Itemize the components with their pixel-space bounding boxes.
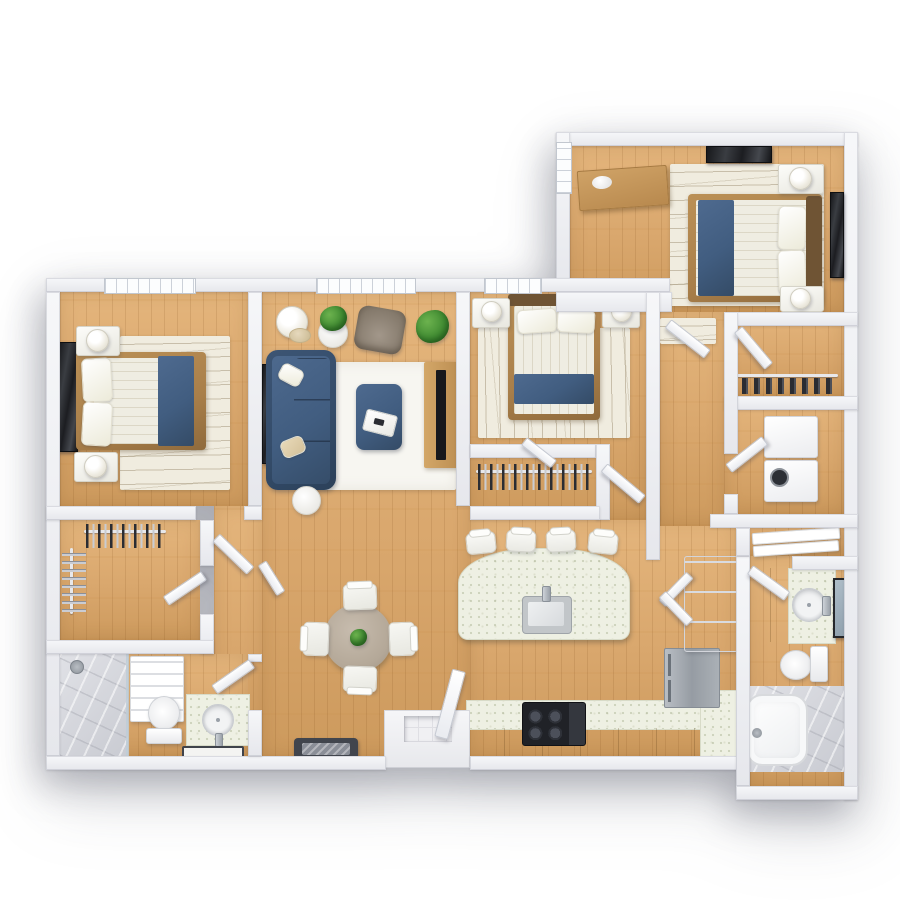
doormat-pattern [302, 743, 350, 755]
wall [724, 494, 738, 514]
wall [456, 292, 470, 506]
wall [736, 786, 858, 800]
wall [244, 506, 262, 520]
vanity-sink [792, 588, 826, 622]
shower-head [70, 660, 84, 674]
wall [646, 292, 660, 560]
stove-cooktop [522, 702, 586, 746]
toilet-tank [810, 646, 828, 682]
table-lamp [84, 455, 107, 478]
shoe-row [730, 378, 838, 394]
bar-stool [545, 529, 576, 553]
wall [710, 514, 858, 528]
wall [46, 640, 214, 654]
wall [724, 396, 858, 410]
bed-runner [158, 356, 194, 446]
washer [764, 416, 818, 458]
headboard-panel [58, 342, 78, 452]
wall [792, 556, 858, 570]
table-lamp [481, 301, 502, 322]
vanity-faucet [215, 733, 223, 747]
armchair [353, 304, 408, 356]
wall [46, 292, 60, 756]
hanging-clothes [478, 464, 590, 490]
wall [470, 756, 750, 770]
dining-chair [343, 583, 378, 610]
tv-screen [436, 370, 446, 460]
wall [46, 506, 196, 520]
window [556, 142, 572, 194]
pantry-cabinet [684, 556, 738, 652]
wall [46, 756, 386, 770]
wall [556, 132, 858, 146]
wall [724, 312, 858, 326]
wall [736, 556, 750, 786]
table-lamp [789, 167, 812, 190]
pillow [81, 401, 113, 447]
dresser [577, 165, 670, 211]
fridge-handle [668, 654, 671, 676]
wall [470, 506, 600, 520]
side-table [292, 486, 321, 515]
bar-stool [465, 530, 497, 555]
dining-chair [388, 622, 415, 657]
refrigerator [664, 648, 720, 708]
toilet-bowl [148, 696, 180, 730]
vanity-faucet [822, 596, 831, 616]
wall [844, 132, 858, 800]
island-sink-basin [528, 602, 564, 626]
floor-plan [0, 0, 900, 900]
hanging-clothes-side [62, 550, 86, 612]
pillow [777, 206, 807, 251]
wall [200, 520, 214, 566]
fridge-handle [668, 680, 671, 702]
screenshot-canvas [0, 0, 900, 900]
bar-stool [587, 530, 619, 555]
table-lamp [790, 288, 811, 309]
wall [248, 710, 262, 756]
dining-chair [343, 665, 378, 692]
bed-runner [698, 200, 734, 296]
dryer-door [770, 468, 789, 487]
wall-art [706, 146, 772, 163]
floor-lamp-base [289, 328, 311, 343]
window [484, 278, 542, 294]
headboard [806, 196, 822, 300]
vanity-sink [202, 704, 234, 736]
pillow [516, 308, 558, 335]
tub-filler [752, 728, 762, 738]
hanging-clothes [86, 524, 164, 548]
wall [248, 292, 262, 506]
window [104, 278, 196, 294]
island-faucet [542, 586, 551, 602]
shoe-rail [730, 374, 838, 377]
toilet-bowl [780, 650, 812, 680]
bar-stool [505, 529, 536, 553]
wall-art [830, 192, 844, 278]
table-lamp [86, 329, 109, 352]
toilet-tank [146, 728, 182, 744]
bed-runner [514, 374, 594, 404]
shower-glass [126, 654, 129, 756]
wall [736, 528, 750, 556]
dining-chair [302, 622, 329, 657]
window [316, 278, 416, 294]
pillow [81, 357, 113, 403]
